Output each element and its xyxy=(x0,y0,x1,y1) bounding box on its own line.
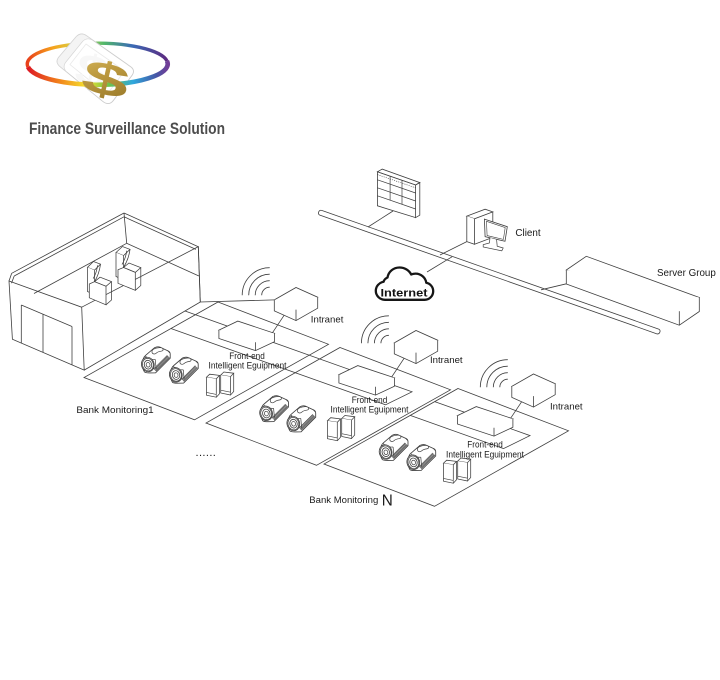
svg-text:Bank Monitoring1: Bank Monitoring1 xyxy=(76,405,153,416)
svg-text:......: ...... xyxy=(196,447,217,459)
svg-text:Server Group: Server Group xyxy=(657,268,716,279)
svg-text:Intelligent Eguipment: Intelligent Eguipment xyxy=(209,361,287,371)
svg-text:Intranet: Intranet xyxy=(550,401,583,411)
svg-text:Intelligent Eguipment: Intelligent Eguipment xyxy=(446,450,524,460)
svg-text:$: $ xyxy=(77,49,135,109)
svg-text:Front-end: Front-end xyxy=(229,351,265,361)
svg-text:Intranet: Intranet xyxy=(430,355,463,365)
svg-text:Finance Surveillance Solution: Finance Surveillance Solution xyxy=(29,119,225,138)
svg-text:Internet: Internet xyxy=(381,288,428,300)
svg-text:Intelligent Eguipment: Intelligent Eguipment xyxy=(331,404,409,414)
svg-text:N: N xyxy=(382,492,393,509)
svg-text:Bank Monitoring: Bank Monitoring xyxy=(309,495,378,506)
svg-text:Front-end: Front-end xyxy=(352,395,388,405)
svg-text:Front-end: Front-end xyxy=(467,439,503,449)
svg-text:Client: Client xyxy=(515,228,541,239)
svg-text:Intranet: Intranet xyxy=(311,315,344,325)
